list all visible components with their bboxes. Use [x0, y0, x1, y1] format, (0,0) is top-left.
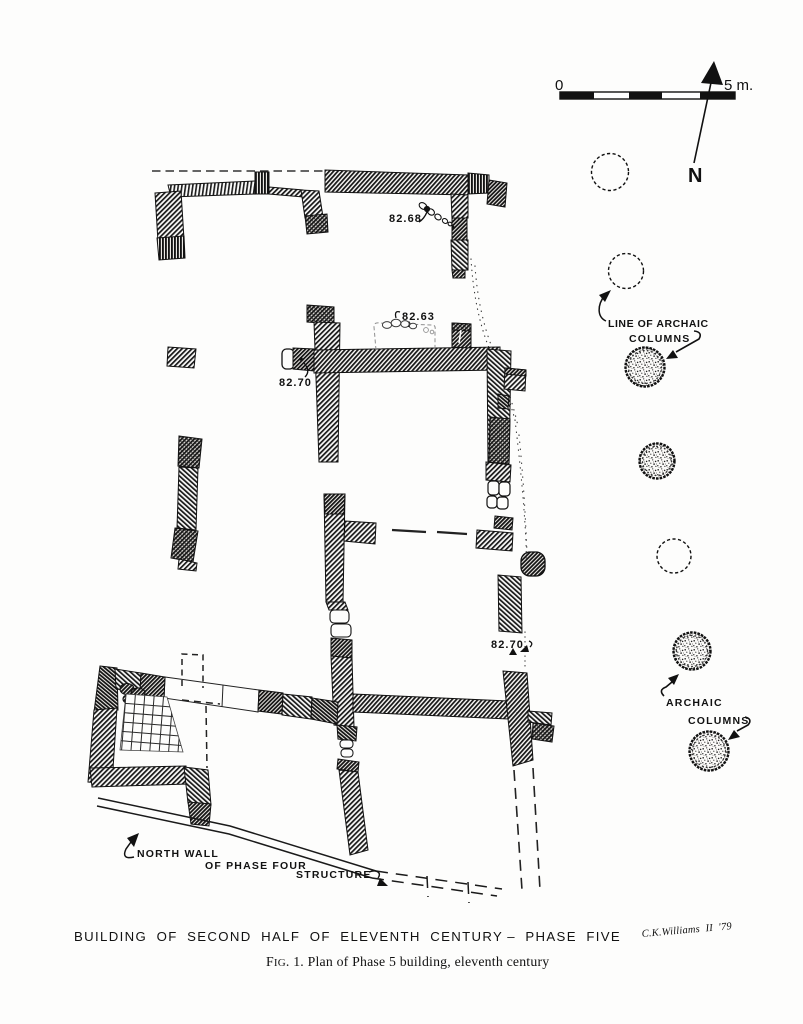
svg-text:82.68: 82.68	[389, 213, 422, 225]
svg-text:5 m.: 5 m.	[724, 77, 753, 94]
svg-text:LINE OF ARCHAIC: LINE OF ARCHAIC	[608, 318, 709, 330]
svg-text:82.70: 82.70	[279, 377, 312, 389]
svg-text:COLUMNS: COLUMNS	[688, 715, 749, 727]
svg-text:ARCHAIC: ARCHAIC	[666, 697, 723, 709]
svg-text:OF PHASE FOUR: OF PHASE FOUR	[205, 860, 307, 872]
svg-text:FIG. 1. Plan of Phase 5 build: FIG. 1. Plan of Phase 5 building, eleven…	[266, 954, 549, 969]
svg-text:N: N	[688, 165, 702, 187]
svg-text:STRUCTURE: STRUCTURE	[296, 869, 372, 881]
svg-text:BUILDING OF SECOND HALF OF ELE: BUILDING OF SECOND HALF OF ELEVENTH CENT…	[74, 929, 621, 944]
svg-text:COLUMNS: COLUMNS	[629, 333, 690, 345]
svg-text:82.70: 82.70	[491, 639, 524, 651]
svg-text:NORTH WALL: NORTH WALL	[137, 848, 219, 860]
svg-text:0: 0	[555, 77, 563, 94]
